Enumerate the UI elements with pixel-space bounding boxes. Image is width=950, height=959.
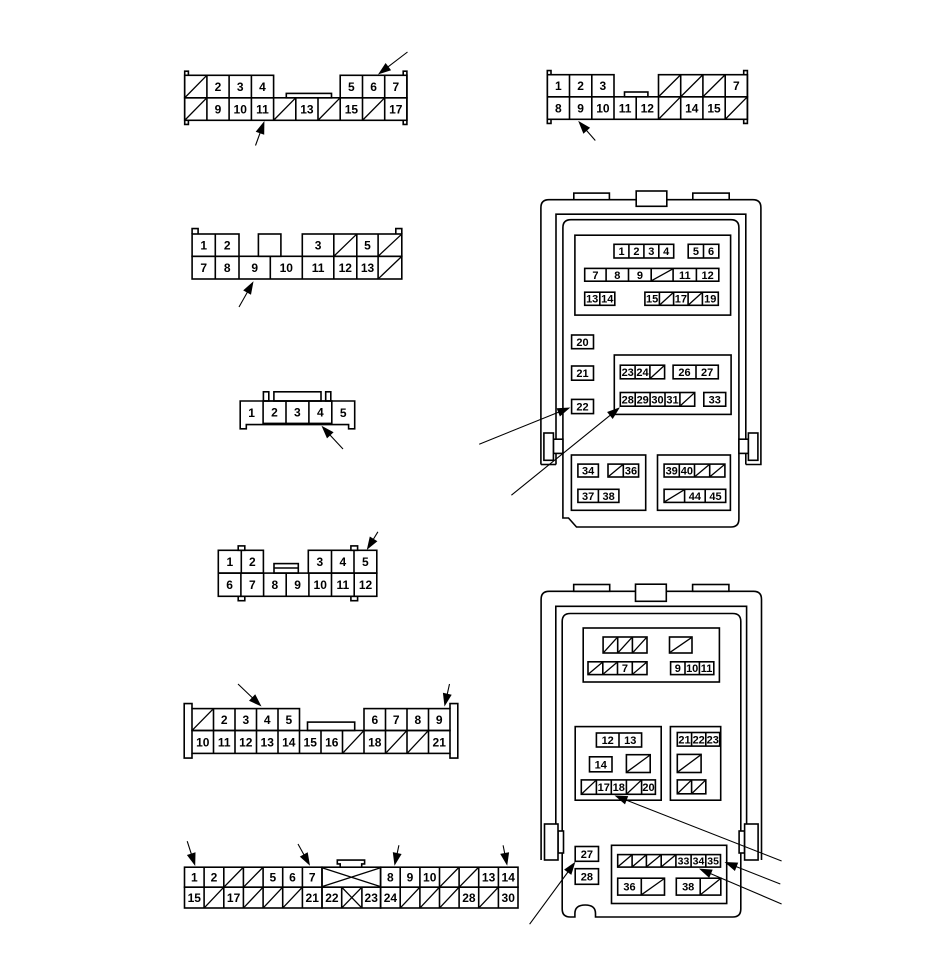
svg-text:3: 3 xyxy=(242,713,249,727)
svg-text:20: 20 xyxy=(642,782,654,794)
svg-text:23: 23 xyxy=(622,367,634,379)
svg-text:11: 11 xyxy=(218,735,231,749)
svg-text:24: 24 xyxy=(384,891,398,905)
svg-text:3: 3 xyxy=(317,555,324,569)
svg-text:35: 35 xyxy=(707,856,719,868)
svg-text:28: 28 xyxy=(581,872,593,884)
svg-text:4: 4 xyxy=(663,246,670,258)
svg-text:7: 7 xyxy=(622,663,628,675)
svg-text:40: 40 xyxy=(681,466,693,478)
svg-text:8: 8 xyxy=(414,713,421,727)
svg-text:2: 2 xyxy=(215,80,222,94)
svg-text:2: 2 xyxy=(271,406,278,420)
svg-text:31: 31 xyxy=(666,394,678,406)
svg-text:10: 10 xyxy=(596,101,610,115)
svg-text:13: 13 xyxy=(261,735,275,749)
svg-text:11: 11 xyxy=(312,261,325,275)
svg-text:34: 34 xyxy=(582,466,595,478)
svg-text:18: 18 xyxy=(368,735,382,749)
svg-text:14: 14 xyxy=(601,294,614,306)
svg-text:9: 9 xyxy=(436,713,443,727)
svg-text:9: 9 xyxy=(294,578,301,592)
svg-text:17: 17 xyxy=(227,891,241,905)
svg-text:10: 10 xyxy=(280,261,294,275)
svg-text:9: 9 xyxy=(215,102,222,116)
svg-text:15: 15 xyxy=(188,891,202,905)
svg-text:39: 39 xyxy=(666,466,678,478)
svg-text:27: 27 xyxy=(581,849,593,861)
svg-text:21: 21 xyxy=(433,735,447,749)
svg-text:10: 10 xyxy=(234,102,248,116)
svg-text:5: 5 xyxy=(270,871,277,885)
svg-text:1: 1 xyxy=(191,871,198,885)
svg-text:8: 8 xyxy=(272,578,279,592)
svg-text:11: 11 xyxy=(619,101,632,115)
svg-text:14: 14 xyxy=(685,101,699,115)
svg-text:4: 4 xyxy=(264,713,271,727)
svg-text:6: 6 xyxy=(370,80,377,94)
svg-text:10: 10 xyxy=(314,578,328,592)
svg-text:5: 5 xyxy=(340,406,347,420)
svg-text:3: 3 xyxy=(600,79,607,93)
svg-text:1: 1 xyxy=(555,79,562,93)
svg-text:5: 5 xyxy=(362,555,369,569)
svg-text:6: 6 xyxy=(226,578,233,592)
svg-text:8: 8 xyxy=(224,261,231,275)
svg-text:3: 3 xyxy=(237,80,244,94)
svg-text:21: 21 xyxy=(576,368,588,380)
svg-text:2: 2 xyxy=(249,555,256,569)
svg-text:5: 5 xyxy=(348,80,355,94)
svg-text:12: 12 xyxy=(701,270,713,282)
svg-text:5: 5 xyxy=(693,246,699,258)
svg-text:14: 14 xyxy=(502,871,516,885)
svg-text:2: 2 xyxy=(577,79,584,93)
svg-text:11: 11 xyxy=(336,578,349,592)
svg-text:9: 9 xyxy=(407,871,414,885)
svg-text:8: 8 xyxy=(387,871,394,885)
svg-text:4: 4 xyxy=(339,555,346,569)
svg-text:12: 12 xyxy=(359,578,373,592)
svg-text:7: 7 xyxy=(592,270,598,282)
svg-text:1: 1 xyxy=(618,246,624,258)
svg-text:11: 11 xyxy=(256,102,269,116)
svg-text:7: 7 xyxy=(249,578,256,592)
svg-text:13: 13 xyxy=(586,294,598,306)
svg-text:7: 7 xyxy=(200,261,207,275)
svg-text:13: 13 xyxy=(624,735,636,747)
svg-text:28: 28 xyxy=(622,394,634,406)
svg-text:33: 33 xyxy=(678,856,690,868)
svg-text:45: 45 xyxy=(709,491,721,503)
svg-text:8: 8 xyxy=(555,101,562,115)
svg-text:13: 13 xyxy=(300,102,314,116)
svg-text:7: 7 xyxy=(393,713,400,727)
svg-text:11: 11 xyxy=(679,270,691,282)
svg-text:37: 37 xyxy=(582,491,594,503)
svg-text:12: 12 xyxy=(641,101,655,115)
svg-text:26: 26 xyxy=(678,367,690,379)
svg-text:12: 12 xyxy=(339,261,353,275)
svg-text:12: 12 xyxy=(239,735,253,749)
svg-text:9: 9 xyxy=(577,101,584,115)
svg-text:21: 21 xyxy=(678,734,690,746)
svg-text:23: 23 xyxy=(707,734,719,746)
svg-text:34: 34 xyxy=(693,856,705,868)
svg-text:17: 17 xyxy=(598,782,610,794)
svg-text:5: 5 xyxy=(285,713,292,727)
svg-text:7: 7 xyxy=(309,871,316,885)
svg-text:6: 6 xyxy=(708,246,714,258)
svg-text:23: 23 xyxy=(365,891,379,905)
svg-text:10: 10 xyxy=(196,735,210,749)
svg-text:15: 15 xyxy=(707,101,721,115)
svg-text:7: 7 xyxy=(733,79,740,93)
svg-text:24: 24 xyxy=(636,367,649,379)
svg-text:13: 13 xyxy=(482,871,496,885)
svg-text:18: 18 xyxy=(613,782,625,794)
svg-text:17: 17 xyxy=(389,102,403,116)
svg-text:36: 36 xyxy=(623,882,635,894)
svg-text:22: 22 xyxy=(325,891,339,905)
svg-text:10: 10 xyxy=(423,871,437,885)
svg-text:15: 15 xyxy=(345,102,359,116)
svg-text:10: 10 xyxy=(686,663,698,675)
svg-text:8: 8 xyxy=(614,270,620,282)
svg-text:1: 1 xyxy=(226,555,233,569)
svg-text:36: 36 xyxy=(625,466,637,478)
svg-text:30: 30 xyxy=(502,891,516,905)
svg-text:17: 17 xyxy=(675,294,687,306)
svg-text:22: 22 xyxy=(576,402,588,414)
svg-text:29: 29 xyxy=(637,394,649,406)
svg-text:1: 1 xyxy=(200,239,207,253)
svg-text:3: 3 xyxy=(315,239,322,253)
svg-text:9: 9 xyxy=(637,270,643,282)
svg-text:5: 5 xyxy=(364,239,371,253)
svg-text:28: 28 xyxy=(462,891,476,905)
svg-text:12: 12 xyxy=(602,735,614,747)
svg-text:2: 2 xyxy=(224,239,231,253)
svg-text:4: 4 xyxy=(317,406,324,420)
svg-text:2: 2 xyxy=(211,871,218,885)
svg-text:9: 9 xyxy=(251,261,258,275)
svg-text:2: 2 xyxy=(633,246,639,258)
svg-text:1: 1 xyxy=(248,406,255,420)
svg-text:16: 16 xyxy=(325,735,339,749)
svg-text:14: 14 xyxy=(595,759,608,771)
svg-text:6: 6 xyxy=(371,713,378,727)
svg-text:30: 30 xyxy=(651,394,663,406)
svg-text:15: 15 xyxy=(646,294,658,306)
svg-text:27: 27 xyxy=(701,367,713,379)
svg-text:19: 19 xyxy=(704,294,716,306)
svg-text:3: 3 xyxy=(294,406,301,420)
svg-text:21: 21 xyxy=(306,891,320,905)
svg-text:44: 44 xyxy=(689,491,702,503)
svg-text:4: 4 xyxy=(259,80,266,94)
svg-text:20: 20 xyxy=(576,337,588,349)
svg-text:6: 6 xyxy=(289,871,296,885)
svg-text:2: 2 xyxy=(221,713,228,727)
svg-text:13: 13 xyxy=(361,261,375,275)
svg-text:33: 33 xyxy=(709,394,721,406)
svg-text:38: 38 xyxy=(602,491,614,503)
svg-text:7: 7 xyxy=(392,80,399,94)
svg-text:11: 11 xyxy=(701,663,713,675)
svg-text:3: 3 xyxy=(648,246,654,258)
svg-text:15: 15 xyxy=(304,735,318,749)
svg-text:22: 22 xyxy=(693,734,705,746)
svg-text:14: 14 xyxy=(282,735,296,749)
svg-text:9: 9 xyxy=(675,663,681,675)
svg-text:38: 38 xyxy=(682,882,694,894)
